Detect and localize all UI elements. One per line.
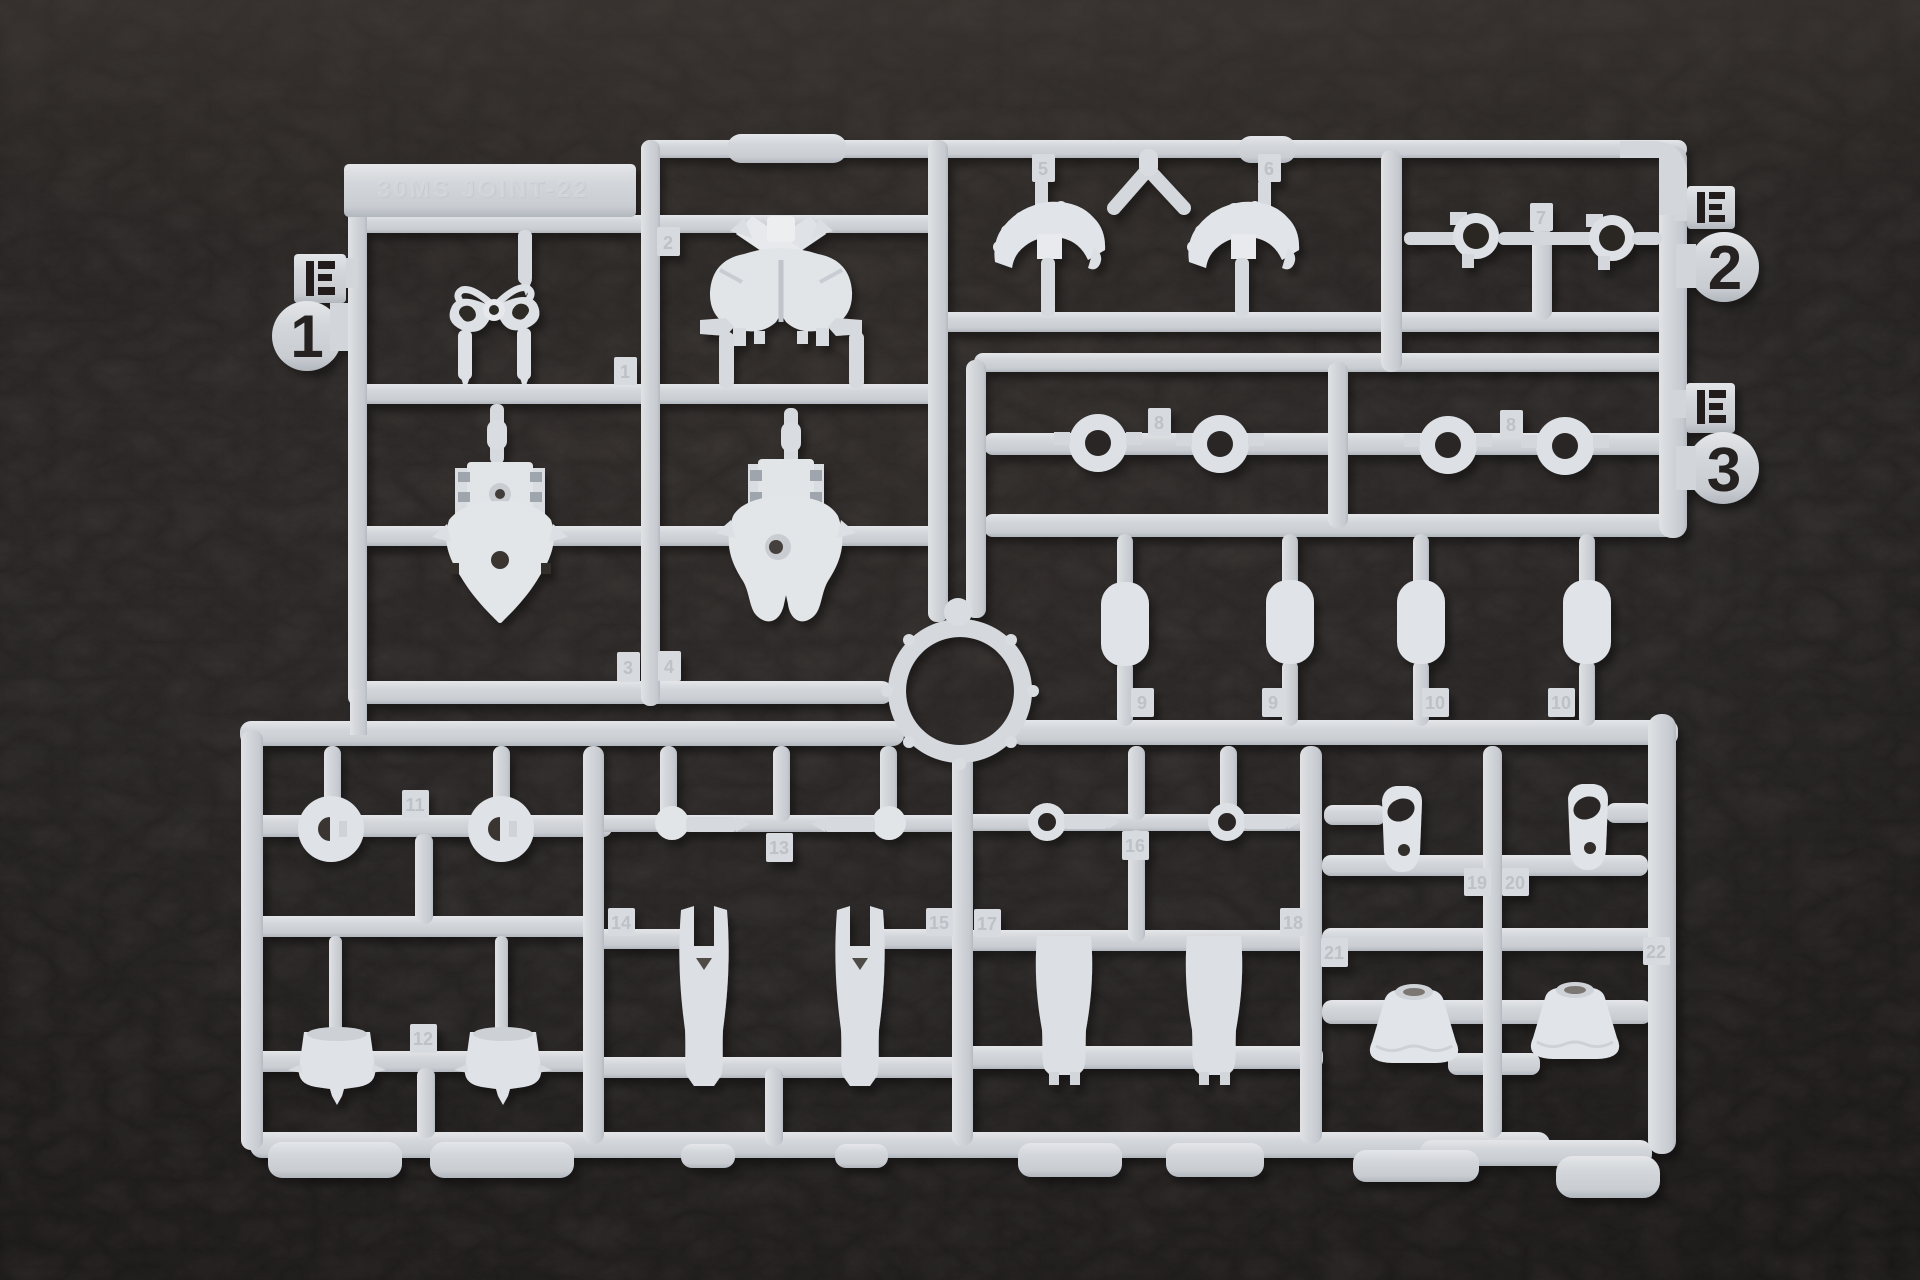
svg-text:21: 21 (1324, 943, 1344, 963)
svg-text:2: 2 (663, 233, 673, 253)
svg-text:7: 7 (1536, 208, 1546, 228)
svg-text:13: 13 (769, 838, 789, 858)
svg-text:19: 19 (1467, 873, 1487, 893)
svg-text:9: 9 (1268, 693, 1278, 713)
svg-text:14: 14 (611, 913, 631, 933)
svg-text:30MS JOINT-22: 30MS JOINT-22 (377, 176, 589, 203)
svg-text:22: 22 (1646, 942, 1666, 962)
svg-text:8: 8 (1506, 415, 1516, 435)
svg-text:20: 20 (1505, 873, 1525, 893)
svg-text:10: 10 (1425, 693, 1445, 713)
svg-text:16: 16 (1125, 836, 1145, 856)
svg-text:4: 4 (664, 657, 674, 677)
svg-text:12: 12 (413, 1029, 433, 1049)
svg-text:5: 5 (1038, 159, 1048, 179)
svg-text:17: 17 (977, 914, 997, 934)
svg-text:2: 2 (1708, 234, 1742, 303)
svg-text:3: 3 (623, 658, 633, 678)
svg-text:9: 9 (1137, 693, 1147, 713)
svg-text:3: 3 (1707, 436, 1741, 505)
svg-text:10: 10 (1551, 693, 1571, 713)
svg-text:6: 6 (1264, 159, 1274, 179)
svg-text:15: 15 (929, 913, 949, 933)
svg-text:1: 1 (620, 362, 630, 382)
svg-text:8: 8 (1154, 413, 1164, 433)
svg-text:18: 18 (1283, 913, 1303, 933)
svg-text:1: 1 (290, 303, 323, 370)
svg-text:11: 11 (405, 795, 424, 815)
